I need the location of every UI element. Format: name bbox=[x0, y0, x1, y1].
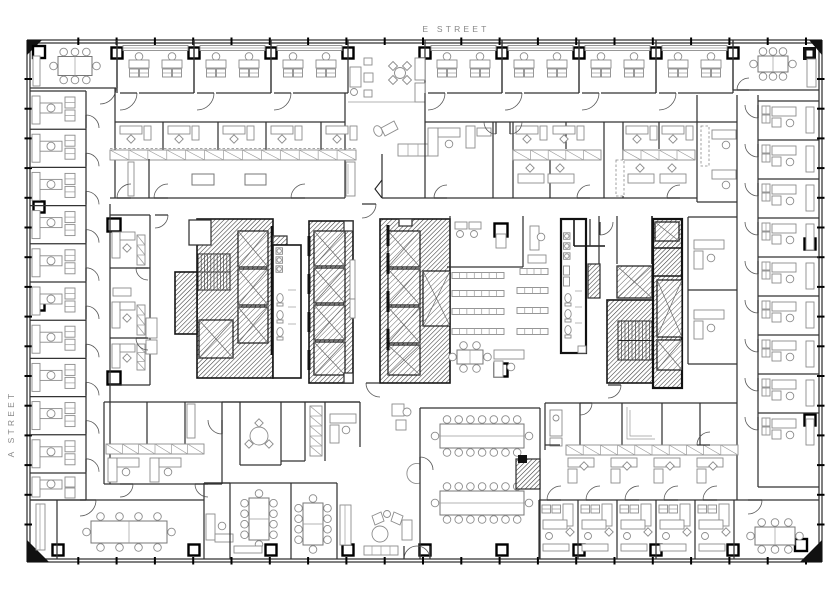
svg-text:E STREET: E STREET bbox=[422, 24, 489, 34]
svg-text:A STREET: A STREET bbox=[6, 391, 16, 458]
